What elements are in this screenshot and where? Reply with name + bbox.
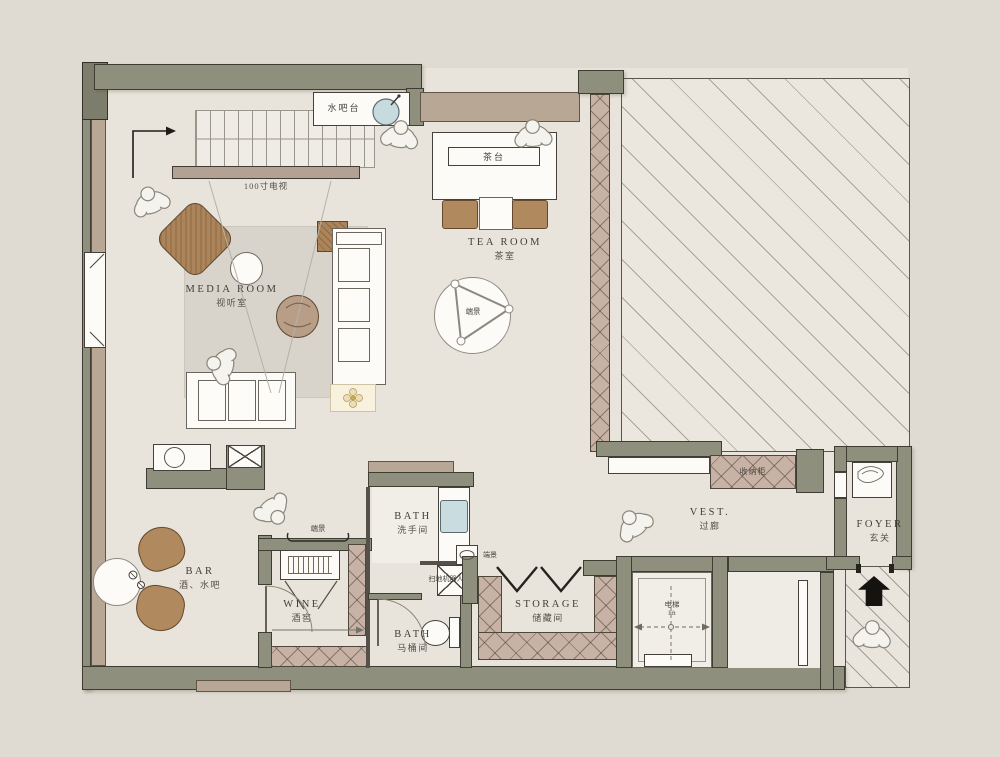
foyer-top-wall bbox=[845, 446, 898, 462]
bath-wc-label-en: BATH bbox=[384, 628, 442, 642]
vest-label-zh: 过廊 bbox=[680, 520, 740, 532]
wash-basin bbox=[440, 500, 468, 533]
foyer-label-zh: 玄关 bbox=[848, 532, 912, 544]
foyer-door-leaf bbox=[834, 472, 847, 498]
tea-chair bbox=[512, 200, 548, 229]
media-room-label: MEDIA ROOM 视听室 bbox=[168, 283, 296, 313]
foyer-label-en: FOYER bbox=[848, 518, 912, 532]
sofa-cushion bbox=[338, 328, 370, 362]
tea-room-label-zh: 茶室 bbox=[440, 250, 570, 262]
storage-label-en: STORAGE bbox=[503, 598, 593, 612]
entry-wall-right bbox=[892, 556, 912, 570]
wine-label-en: WINE bbox=[272, 598, 332, 612]
flower-ottoman bbox=[330, 384, 376, 412]
top-wall bbox=[94, 64, 422, 90]
wine-endview-label: 端景 bbox=[296, 523, 340, 532]
bar-appliance-box bbox=[228, 445, 262, 468]
vest-label-en: VEST. bbox=[680, 506, 740, 520]
vest-white-counter bbox=[608, 457, 710, 474]
window-niche bbox=[84, 252, 106, 348]
bath-wc-label: BATH 马桶间 bbox=[384, 628, 442, 656]
wine-column-lattice bbox=[348, 544, 366, 636]
wc-north-wall bbox=[368, 593, 422, 600]
elevator-label: 电梯 lift bbox=[641, 599, 703, 619]
media-room-label-en: MEDIA ROOM bbox=[168, 283, 296, 297]
tea-room-lattice-partition bbox=[590, 94, 610, 452]
shelf-endview-label: 端景 bbox=[479, 550, 501, 559]
bar-round-table bbox=[93, 558, 141, 606]
vest-cabinet-label: 收纳柜 bbox=[718, 466, 788, 477]
shaft-top-wall bbox=[728, 556, 834, 572]
end-view-label: 端景 bbox=[460, 306, 486, 316]
bath-wash-label-zh: 洗手间 bbox=[382, 524, 444, 536]
bath-wash-label: BATH 洗手间 bbox=[382, 510, 444, 538]
chaise-cushion bbox=[258, 380, 286, 421]
bottom-wall-tan-tab bbox=[196, 680, 291, 692]
elevator-left-wall bbox=[616, 556, 632, 668]
tv-console bbox=[172, 166, 360, 179]
wc-east-wall bbox=[460, 595, 472, 668]
floor-plan: 水吧台 100寸电视 MEDIA ROOM 视听室 茶台 TEA ROOM 茶室… bbox=[0, 0, 1000, 757]
bath-north-wall bbox=[368, 472, 474, 487]
foyer-left-wall-upper bbox=[834, 446, 847, 472]
tv-label: 100寸电视 bbox=[206, 180, 326, 191]
sofa-cushion bbox=[338, 288, 370, 322]
bath-wc-label-zh: 马桶间 bbox=[384, 642, 442, 654]
tea-room-label: TEA ROOM 茶室 bbox=[440, 236, 570, 266]
wine-base-lattice bbox=[271, 646, 367, 667]
wine-label: WINE 酒窖 bbox=[272, 598, 332, 626]
entry-door-post bbox=[889, 564, 894, 573]
tea-room-north-cabinet bbox=[420, 92, 580, 122]
sofa-head-cushion bbox=[336, 232, 382, 245]
wine-label-zh: 酒窖 bbox=[272, 612, 332, 624]
elevator-door bbox=[644, 654, 692, 667]
vest-label: VEST. 过廊 bbox=[680, 506, 740, 536]
top-wall-block bbox=[578, 70, 624, 94]
foyer-label: FOYER 玄关 bbox=[848, 518, 912, 548]
foyer-left-wall-lower bbox=[834, 498, 847, 564]
water-bar-label: 水吧台 bbox=[316, 101, 372, 115]
storage-west-pier bbox=[462, 556, 478, 604]
bar-label: BAR 酒、水吧 bbox=[160, 565, 240, 593]
entry-wall-left bbox=[826, 556, 860, 570]
bar-sink-bowl bbox=[164, 447, 185, 468]
storage-cabinet-bottom bbox=[478, 632, 618, 660]
bath-partition-wall bbox=[366, 487, 370, 668]
storage-label-zh: 储藏间 bbox=[503, 612, 593, 624]
tea-room-label-en: TEA ROOM bbox=[440, 236, 570, 250]
wine-wall-left-lower bbox=[258, 632, 272, 668]
entry-door-post bbox=[856, 564, 861, 573]
right-wall bbox=[896, 446, 912, 568]
foyer-artwork bbox=[852, 462, 892, 498]
toilet-tank bbox=[449, 617, 460, 648]
void-hatched-area bbox=[621, 78, 910, 452]
shaft-right-wall bbox=[820, 572, 834, 690]
shaft-door-leaf bbox=[798, 580, 808, 666]
tea-table-inner-label: 茶台 bbox=[448, 147, 540, 166]
tea-chair bbox=[442, 200, 478, 229]
wine-rack-bottles bbox=[288, 556, 332, 574]
elevator-label-en: lift bbox=[641, 610, 703, 617]
left-wall-outer bbox=[82, 62, 91, 690]
round-side-table bbox=[230, 252, 263, 285]
elevator-label-zh: 电梯 bbox=[641, 599, 703, 610]
media-room-label-zh: 视听室 bbox=[168, 297, 296, 309]
elevator-right-wall bbox=[712, 556, 728, 668]
bar-label-zh: 酒、水吧 bbox=[160, 579, 240, 591]
chaise-cushion bbox=[228, 380, 256, 421]
elevator-cab-frame bbox=[638, 578, 706, 662]
tea-chair-white bbox=[479, 197, 513, 230]
vest-cabinet-pier bbox=[796, 449, 824, 493]
bath-wash-label-en: BATH bbox=[382, 510, 444, 524]
storage-label: STORAGE 储藏间 bbox=[503, 598, 593, 626]
sofa-cushion bbox=[338, 248, 370, 282]
vest-north-wall bbox=[596, 441, 722, 457]
bar-label-en: BAR bbox=[160, 565, 240, 579]
chaise-cushion bbox=[198, 380, 226, 421]
